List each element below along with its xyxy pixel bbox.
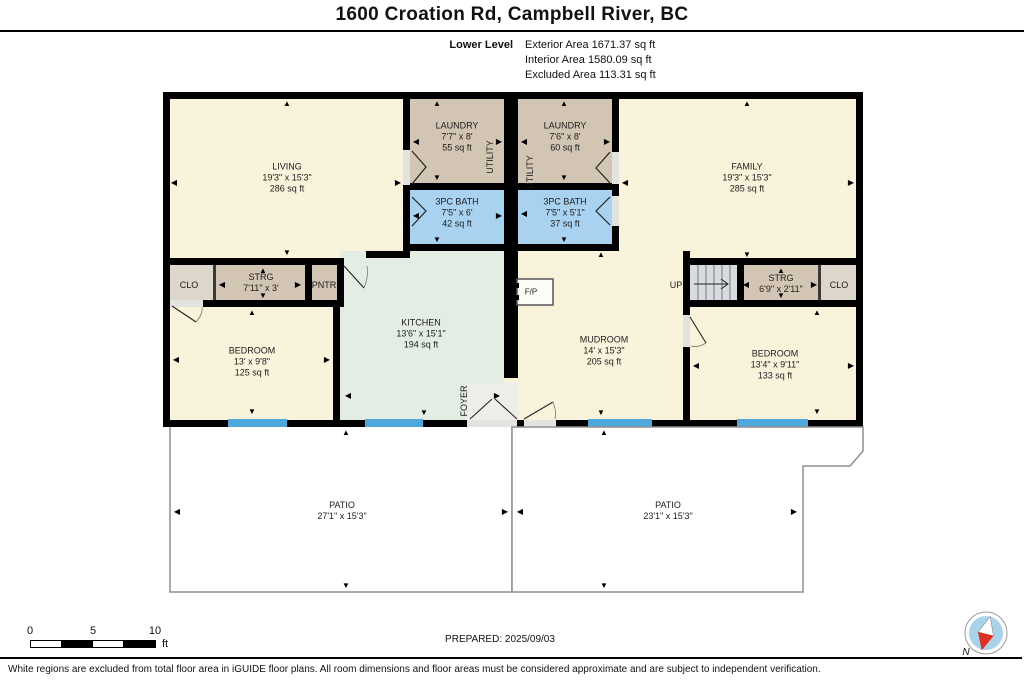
scale-tick-5: 5 — [90, 625, 96, 637]
dim-arrow: ▼ — [283, 249, 291, 257]
dim-arrow: ◀ — [171, 179, 177, 187]
dim-arrow: ▲ — [600, 429, 608, 437]
door-jamb — [612, 152, 619, 184]
wall — [403, 185, 410, 251]
dim-arrow: ◀ — [743, 281, 749, 289]
label-utility-right: UTILITY — [525, 155, 535, 189]
dim-arrow: ▼ — [560, 174, 568, 182]
scale-segment — [123, 640, 156, 648]
wall — [333, 307, 340, 420]
exterior-area: Exterior Area 1671.37 sq ft — [525, 39, 655, 51]
footer-divider — [0, 657, 1022, 659]
scale-segment — [30, 640, 63, 648]
window — [588, 419, 652, 428]
dim-arrow: ▼ — [813, 408, 821, 416]
dim-arrow: ◀ — [521, 210, 527, 218]
dim-arrow: ▼ — [420, 409, 428, 417]
wall — [683, 347, 690, 420]
level-label: Lower Level — [0, 39, 513, 51]
dim-arrow: ▶ — [791, 508, 797, 516]
dim-arrow: ▼ — [743, 251, 751, 259]
dim-arrow: ◀ — [622, 179, 628, 187]
room-label-mudroom: MUDROOM 14' x 15'3" 205 sq ft — [580, 335, 629, 368]
dim-arrow: ▲ — [283, 100, 291, 108]
label-closet-right: CLO — [830, 280, 849, 290]
dim-arrow: ◀ — [413, 138, 419, 146]
wall — [517, 420, 524, 427]
room-label-patio-left: PATIO 27'1" x 15'3" — [317, 500, 366, 522]
dim-arrow: ▶ — [395, 179, 401, 187]
door-jamb — [170, 300, 203, 307]
room-label-bath-right: 3PC BATH 7'5" x 5'1" 37 sq ft — [543, 197, 586, 230]
wall — [403, 183, 504, 190]
dim-arrow: ▲ — [597, 251, 605, 259]
label-up: UP — [670, 280, 683, 290]
dim-arrow: ▼ — [248, 408, 256, 416]
wall — [337, 258, 344, 307]
dim-arrow: ◀ — [345, 392, 351, 400]
window — [228, 419, 287, 428]
dim-arrow: ◀ — [517, 508, 523, 516]
room-label-patio-right: PATIO 23'1" x 15'3" — [643, 500, 692, 522]
room-label-living: LIVING 19'3" x 15'3" 286 sq ft — [262, 162, 311, 195]
dim-arrow: ▶ — [604, 138, 610, 146]
dim-arrow: ▶ — [811, 281, 817, 289]
label-foyer: FOYER — [459, 385, 469, 416]
room-label-storage-right: STRG 6'9" x 2'11" — [759, 273, 803, 295]
dim-arrow: ▶ — [324, 356, 330, 364]
dim-arrow: ▼ — [433, 236, 441, 244]
floor-plan-page: 1600 Croation Rd, Campbell River, BC Low… — [0, 0, 1024, 683]
wall-center — [504, 92, 518, 378]
compass-icon — [965, 612, 1007, 654]
patio-door-sill — [524, 420, 556, 427]
wall — [612, 184, 619, 196]
dim-arrow: ▶ — [502, 508, 508, 516]
dim-arrow: ▲ — [560, 100, 568, 108]
dim-arrow: ◀ — [173, 356, 179, 364]
disclaimer-text: White regions are excluded from total fl… — [8, 664, 821, 675]
wall — [403, 244, 518, 251]
scale-tick-10: 10 — [149, 625, 161, 637]
dim-arrow: ◀ — [693, 362, 699, 370]
room-label-kitchen: KITCHEN 13'6" x 15'1" 194 sq ft — [396, 318, 445, 351]
scale-unit: ft — [162, 638, 168, 650]
wall — [203, 300, 344, 307]
page-title: 1600 Croation Rd, Campbell River, BC — [0, 4, 1024, 26]
scale-segment — [92, 640, 125, 648]
label-closet-left: CLO — [180, 280, 199, 290]
dim-arrow: ▼ — [342, 582, 350, 590]
label-utility-left: UTILITY — [485, 140, 495, 174]
dim-arrow: ▶ — [848, 179, 854, 187]
wall — [683, 300, 863, 307]
room-label-bath-left: 3PC BATH 7'5" x 6' 42 sq ft — [435, 197, 478, 230]
prepared-date: PREPARED: 2025/09/03 — [445, 634, 555, 645]
room-label-family: FAMILY 19'3" x 15'3" 285 sq ft — [722, 162, 771, 195]
wall-thin — [818, 265, 821, 300]
header-divider — [0, 30, 1024, 32]
dim-arrow: ◀ — [521, 138, 527, 146]
scale-tick-0: 0 — [27, 625, 33, 637]
scale-segment — [61, 640, 94, 648]
door-jamb — [683, 315, 690, 347]
foyer-floor — [468, 383, 518, 420]
wall — [612, 92, 619, 152]
door-jamb — [612, 196, 619, 226]
dim-arrow: ▼ — [600, 582, 608, 590]
dim-arrow: ▲ — [743, 100, 751, 108]
dim-arrow: ▶ — [295, 281, 301, 289]
label-fireplace: F/P — [525, 288, 537, 297]
wall — [366, 251, 410, 258]
room-label-laundry-right: LAUNDRY 7'6" x 8' 60 sq ft — [544, 121, 587, 154]
room-label-bedroom-left: BEDROOM 13' x 9'8" 125 sq ft — [229, 346, 276, 379]
dim-arrow: ▼ — [433, 174, 441, 182]
dim-arrow: ◀ — [413, 212, 419, 220]
dim-arrow: ◀ — [174, 508, 180, 516]
dim-arrow: ▲ — [342, 429, 350, 437]
room-label-storage-left: STRG 7'11" x 3' — [243, 272, 279, 294]
interior-area: Interior Area 1580.09 sq ft — [525, 54, 652, 66]
entry-door-sill — [467, 420, 517, 427]
window — [737, 419, 808, 428]
dim-arrow: ▶ — [496, 212, 502, 220]
dim-arrow: ▲ — [433, 100, 441, 108]
room-stairs — [690, 265, 737, 300]
dim-arrow: ▲ — [248, 309, 256, 317]
dim-arrow: ◀ — [219, 281, 225, 289]
excluded-area: Excluded Area 113.31 sq ft — [525, 69, 656, 81]
wall-thin — [213, 265, 216, 300]
wall — [683, 258, 863, 265]
dim-arrow: ▶ — [848, 362, 854, 370]
dim-arrow: ▼ — [560, 236, 568, 244]
dim-arrow: ▶ — [496, 138, 502, 146]
room-label-bedroom-right: BEDROOM 13'4" x 9'11" 133 sq ft — [751, 349, 800, 382]
dim-arrow: ▼ — [597, 409, 605, 417]
dim-arrow: ▲ — [813, 309, 821, 317]
wall — [403, 92, 410, 150]
room-label-laundry-left: LAUNDRY 7'7" x 8' 55 sq ft — [436, 121, 479, 154]
label-pantry: PNTR — [312, 280, 337, 290]
dim-arrow: ▶ — [494, 392, 500, 400]
wall — [163, 258, 344, 265]
door-jamb — [403, 150, 410, 185]
window — [365, 419, 423, 428]
